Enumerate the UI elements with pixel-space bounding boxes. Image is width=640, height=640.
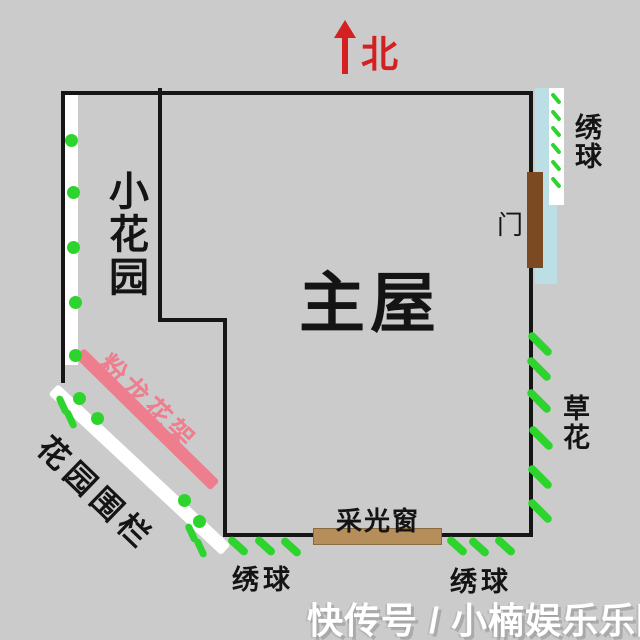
house-left-wall-upper (158, 88, 162, 322)
door-label: 门 (497, 205, 523, 242)
plant-dash (493, 535, 516, 557)
plant-dot (193, 515, 206, 528)
house-left-wall-lower (223, 318, 227, 537)
plant-dash (226, 535, 249, 557)
top-wall (61, 91, 533, 95)
watermark-text: 快传号 / 小楠娱乐乐园 (307, 592, 640, 640)
door-rect (527, 172, 543, 268)
north-arrow-icon (342, 36, 348, 74)
plant-dot (65, 134, 78, 147)
grass-flower-label: 草花 (555, 394, 594, 452)
daylight-window-label: 采光窗 (336, 501, 420, 538)
plant-dash (253, 535, 276, 557)
plant-dot (69, 296, 82, 309)
garden-fence-label: 花园围栏 (29, 424, 167, 559)
plant-dash (467, 536, 490, 558)
plant-dash (445, 535, 468, 557)
plant-dot (69, 349, 82, 362)
hydrangea-top-right-label: 绣球 (567, 113, 606, 171)
plant-dot (67, 241, 80, 254)
small-garden-label: 小花园 (96, 170, 154, 299)
plant-dot (178, 494, 191, 507)
main-house-label: 主屋 (299, 250, 441, 346)
hydrangea-bottom-left-label: 绣球 (232, 558, 294, 597)
north-arrowhead-icon (334, 20, 356, 38)
north-label: 北 (361, 24, 398, 78)
plant-dash (279, 536, 302, 558)
plant-dot (91, 412, 104, 425)
house-step-wall (158, 318, 227, 322)
plant-dot (67, 186, 80, 199)
plant-dot (73, 392, 86, 405)
floor-plan: 北 主屋 小花园 绣球 草花 门 采光窗 绣球 绣球 花园围栏 粉龙花架 快传号… (0, 0, 640, 640)
